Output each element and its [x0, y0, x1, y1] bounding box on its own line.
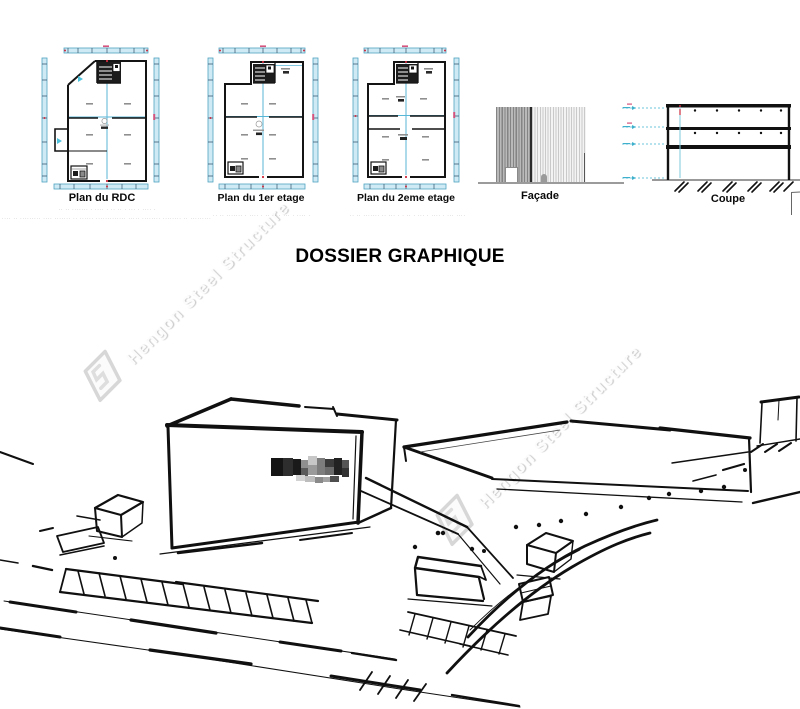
redacted-sign	[271, 456, 349, 483]
shrub-dots	[113, 468, 747, 560]
site-sketch	[0, 0, 800, 709]
